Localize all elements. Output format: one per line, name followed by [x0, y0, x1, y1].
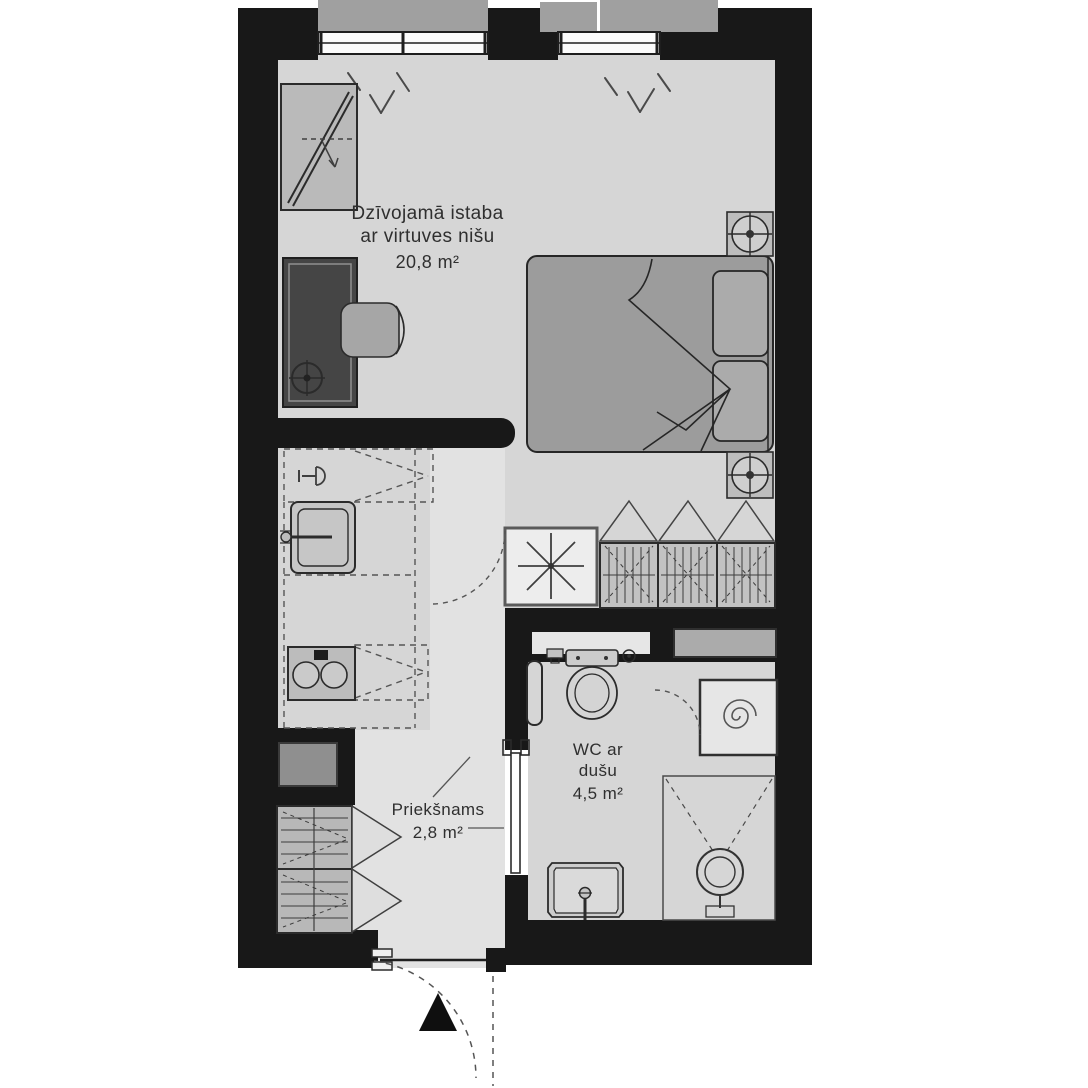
living-area: 20,8 m² [320, 251, 535, 273]
window-sill-2 [600, 0, 718, 32]
wall-left [238, 8, 278, 968]
floor-bed-zone [497, 420, 775, 608]
entrance-arrow-icon [419, 993, 457, 1031]
floor-plan: Dzīvojamā istaba ar virtuves nišu 20,8 m… [0, 0, 1088, 1088]
electrical-panel [278, 742, 338, 787]
bathroom-wall-niche [532, 632, 650, 654]
bathroom-wall-shelf [673, 628, 777, 658]
wall-bottom-left [238, 930, 378, 968]
window-sill-1 [318, 0, 488, 32]
living-name-line1: Dzīvojamā istaba [320, 202, 535, 225]
floor-entrance-opening [378, 930, 505, 968]
floor-kitchen-niche [278, 448, 430, 730]
hall-name: Priekšnams [368, 799, 508, 820]
room-label-hall: Priekšnams 2,8 m² [368, 799, 508, 843]
wall-right [775, 8, 812, 965]
window-2 [558, 32, 660, 54]
wc-area: 4,5 m² [546, 783, 650, 804]
room-label-living: Dzīvojamā istaba ar virtuves nišu 20,8 m… [320, 202, 535, 273]
entrance-door [372, 948, 506, 1086]
door-swing-arc [374, 961, 476, 1078]
window-1 [318, 32, 488, 54]
wall-bathroom-left-upper [505, 608, 528, 750]
wall-interior-living [278, 418, 515, 448]
room-label-wc: WC ar dušu 4,5 m² [546, 739, 650, 804]
wc-name-line1: WC ar [546, 739, 650, 760]
window-sill-pier [540, 2, 597, 32]
hall-area: 2,8 m² [368, 822, 508, 843]
wall-bathroom-bottom [505, 920, 810, 965]
living-name-line2: ar virtuves nišu [320, 225, 535, 248]
wc-name-line2: dušu [546, 760, 650, 781]
